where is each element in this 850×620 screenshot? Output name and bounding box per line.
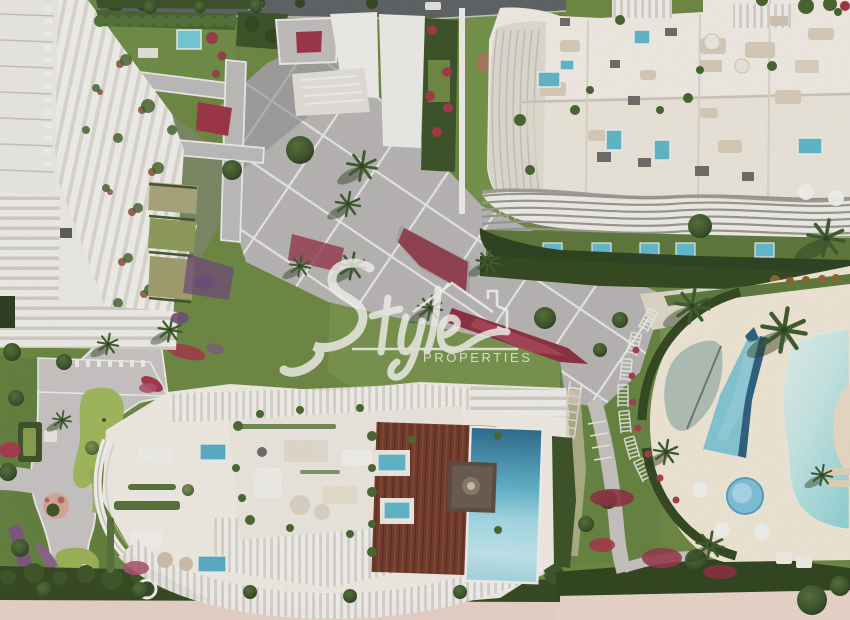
svg-text:PROPERTIES: PROPERTIES (423, 350, 533, 365)
